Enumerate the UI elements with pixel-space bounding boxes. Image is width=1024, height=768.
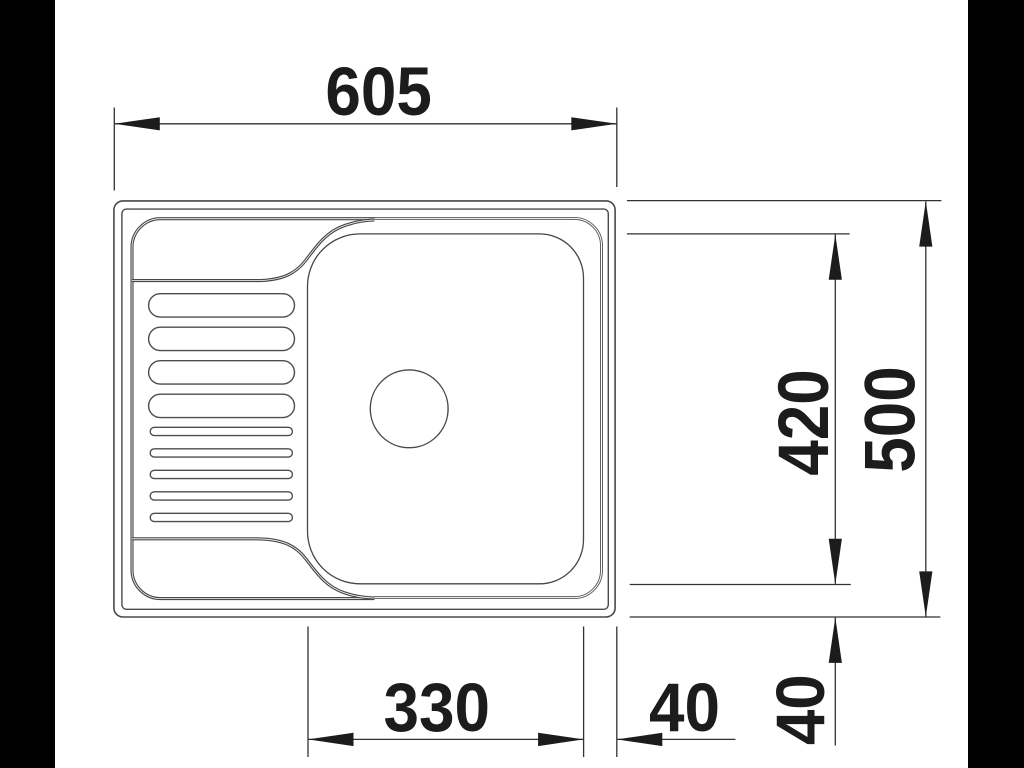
svg-text:605: 605	[325, 54, 431, 131]
svg-text:330: 330	[383, 670, 489, 747]
svg-text:420: 420	[765, 369, 844, 476]
svg-text:500: 500	[851, 366, 930, 473]
svg-text:40: 40	[649, 670, 720, 747]
svg-text:40: 40	[763, 674, 840, 745]
